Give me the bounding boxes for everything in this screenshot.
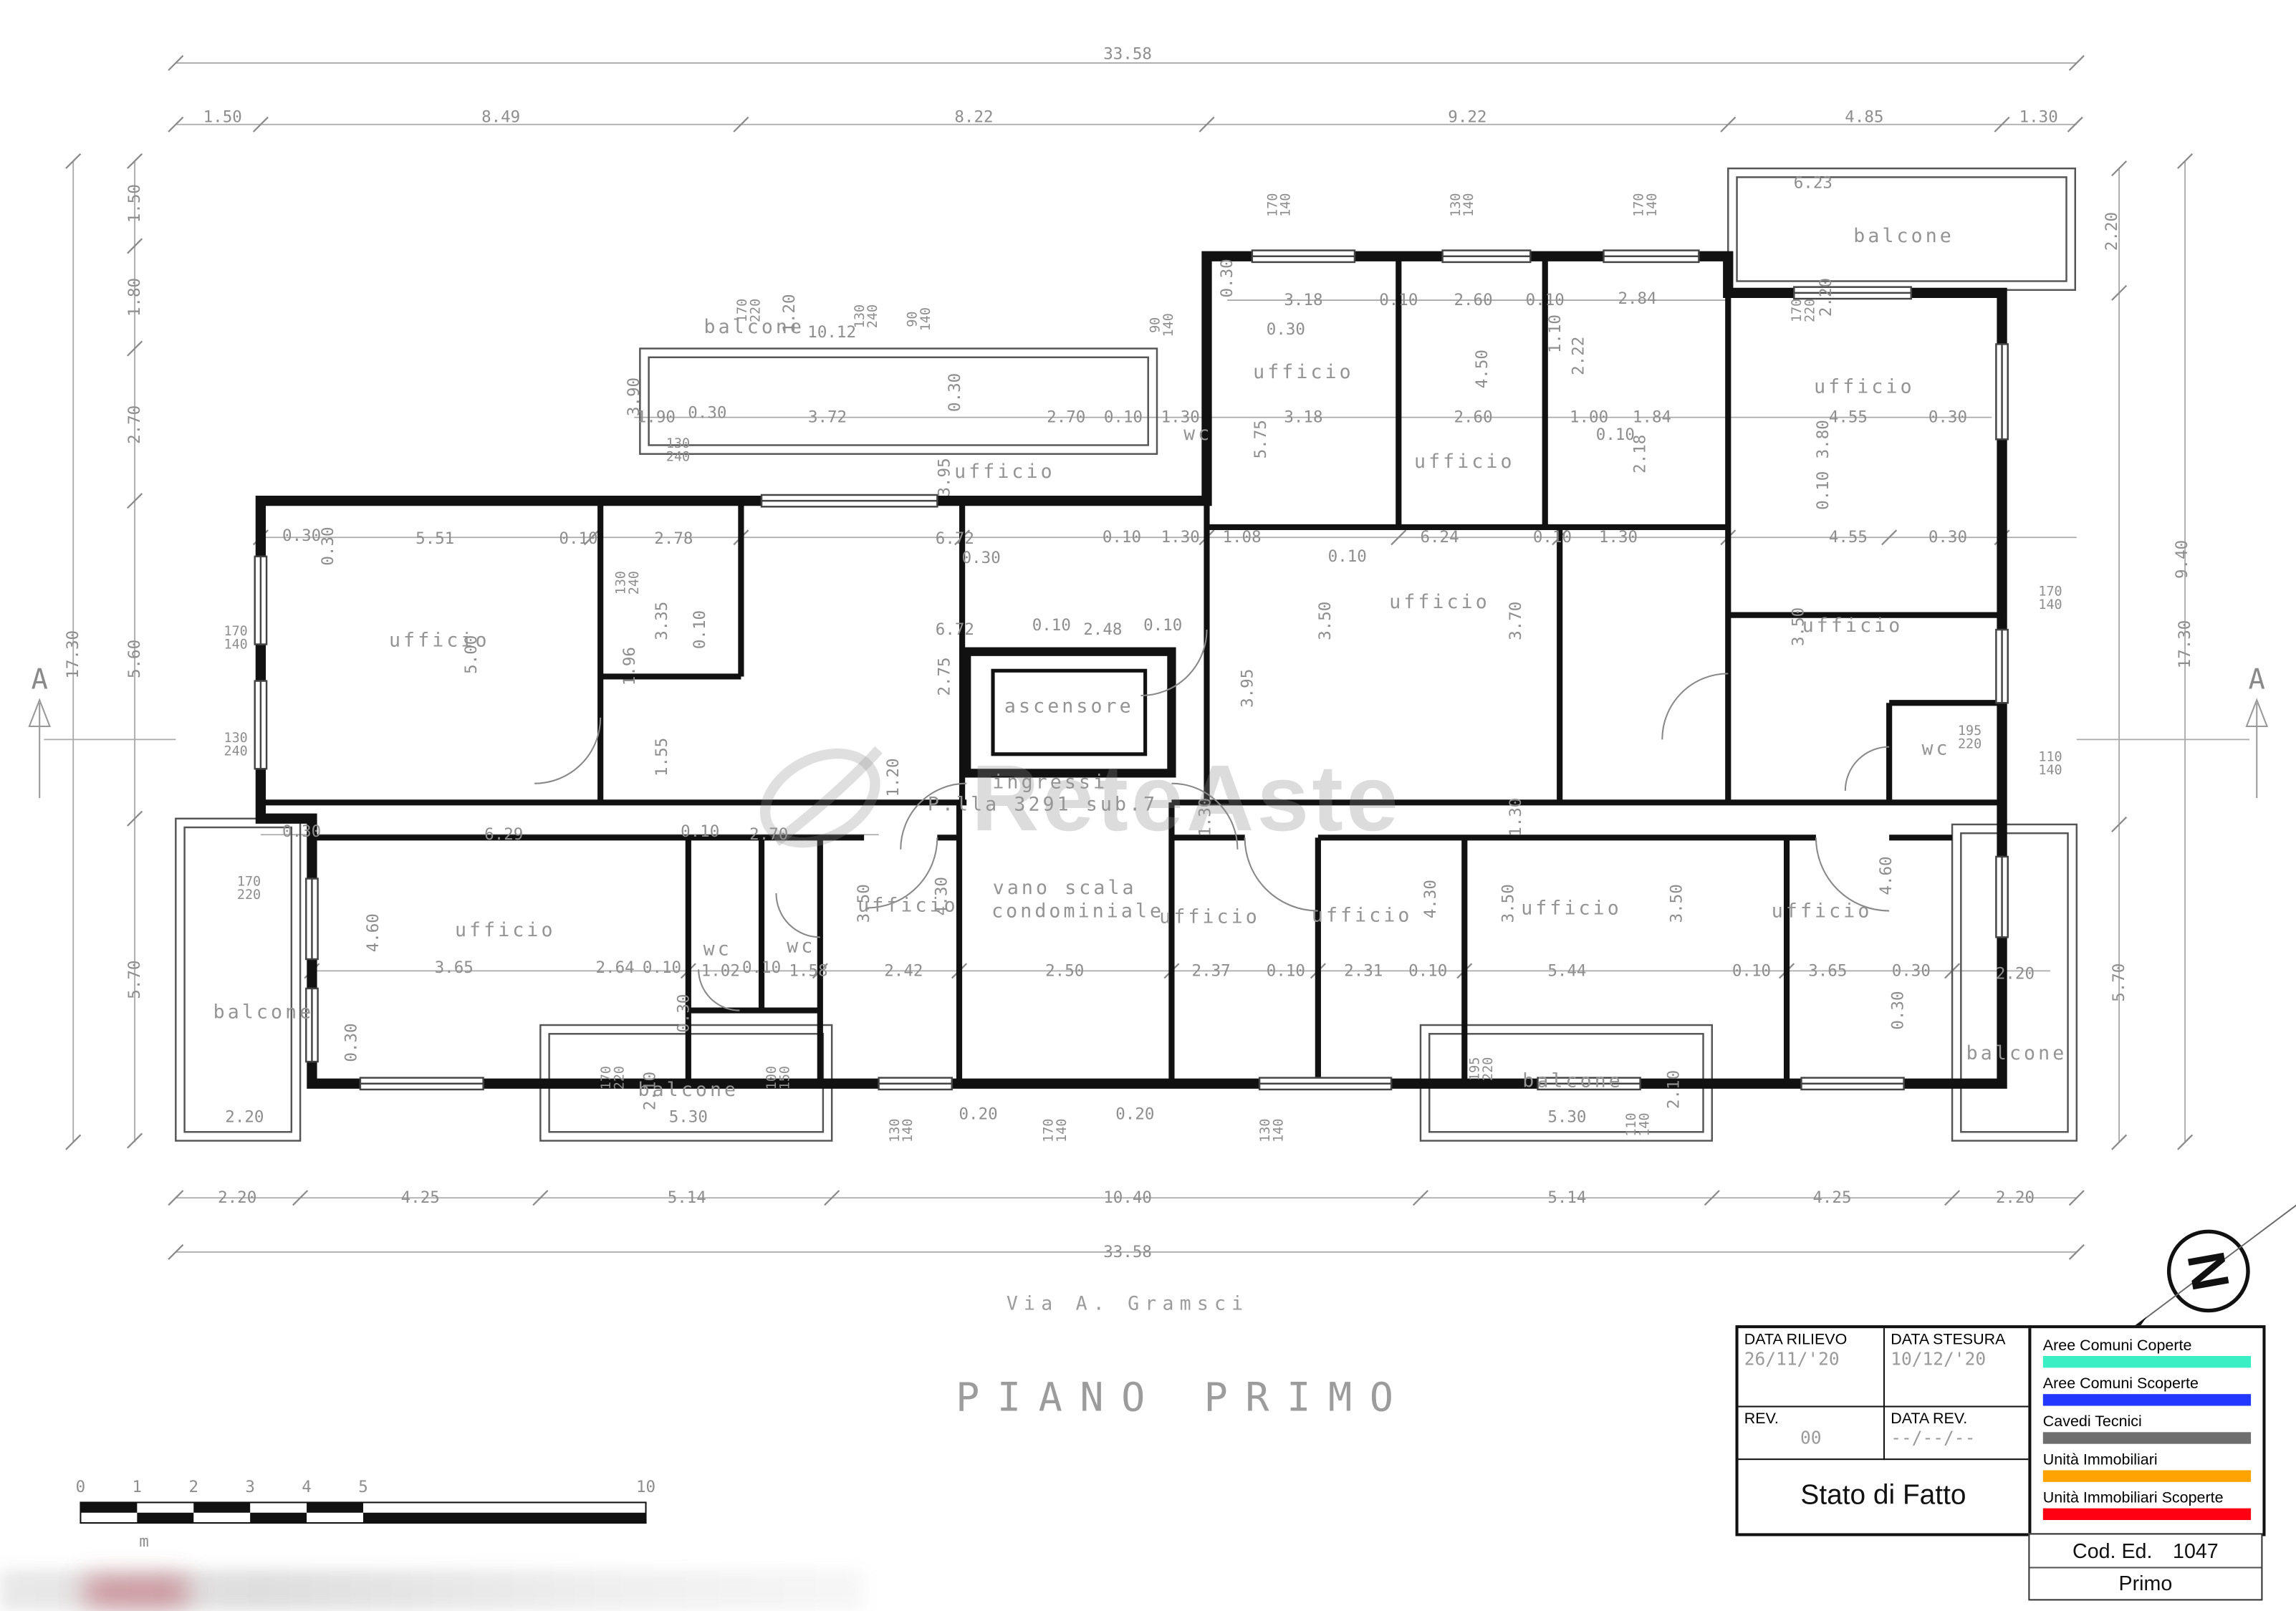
dim-label: 0.30 (1928, 409, 1967, 425)
dim-label: 130 240 (224, 734, 248, 761)
dim-label: 3.18 (1284, 409, 1322, 425)
dim-label: 4.30 (1423, 880, 1439, 918)
room-label: ufficio (1521, 900, 1622, 919)
dim-label: 6.24 (1420, 529, 1459, 546)
dim-label: 0.10 (1143, 617, 1182, 633)
dim-label: 4.85 (1845, 109, 1883, 125)
dim-label: 1.50 (127, 184, 143, 223)
dim-label: 5.30 (1547, 1109, 1586, 1125)
dim-label: 2.10 (1666, 1070, 1682, 1109)
legend-color-bar (2043, 1432, 2251, 1443)
dim-label: 4.55 (1829, 529, 1868, 546)
dim-label: 0.10 (1328, 548, 1367, 564)
dim-label: 0.10 (1267, 963, 1305, 979)
dim-label: 90 140 (908, 307, 935, 331)
room-label: wc (703, 941, 732, 960)
legend-item: Cavedi Tecnici (2043, 1413, 2251, 1444)
dim-label: 0.10 (1104, 409, 1143, 425)
dim-label: 2.78 (654, 531, 693, 547)
room-label: ingressi (992, 774, 1108, 793)
dim-label: 1.30 (1507, 798, 1524, 837)
scalebar-tick: 4 (302, 1478, 312, 1497)
dim-label: 0.10 (1408, 963, 1447, 979)
scale-bar (80, 1502, 645, 1523)
dim-label: 4.25 (1812, 1190, 1851, 1206)
dim-label: 5.60 (127, 640, 143, 678)
dim-label: 3.50 (1500, 884, 1517, 923)
dim-label: 0.30 (962, 549, 1001, 566)
dim-label: 2.20 (225, 1109, 264, 1125)
dim-label: 130 240 (666, 439, 690, 466)
dim-label: 8.49 (481, 109, 520, 125)
dim-label: 0.30 (282, 824, 321, 840)
title-block: DATA RILIEVO 26/11/'20 DATA STESURA 10/1… (1735, 1325, 2265, 1536)
legend-item: Aree Comuni Scoperte (2043, 1375, 2251, 1405)
room-label: ufficio (1312, 907, 1413, 926)
street-label: Via A. Gramsci (1007, 1294, 1249, 1316)
dim-label: 130 240 (855, 304, 883, 328)
dim-label: 3.95 (1239, 669, 1256, 708)
dim-label: 0.10 (1526, 292, 1565, 309)
dim-label: 170 140 (1634, 193, 1661, 217)
dim-label: 170 220 (237, 877, 261, 904)
room-label: balcone (1853, 228, 1954, 247)
dim-label: 0.10 (1103, 529, 1141, 546)
legend-item-label: Aree Comuni Scoperte (2043, 1375, 2251, 1393)
dim-label: 0.30 (946, 373, 963, 412)
dim-label: 170 140 (1044, 1119, 1071, 1143)
dim-label: 0.30 (1928, 529, 1967, 546)
section-letter: A (2249, 667, 2265, 696)
dim-label: 2.75 (936, 657, 953, 696)
legend-item-label: Cavedi Tecnici (2043, 1413, 2251, 1431)
scalebar-tick: 0 (76, 1478, 86, 1497)
dim-label: 0.30 (1219, 259, 1236, 297)
dim-label: 17.30 (2177, 620, 2194, 669)
dim-label: 2.48 (1083, 622, 1122, 638)
data-stesura-value: 10/12/'20 (1891, 1349, 2022, 1370)
dim-label: 5.30 (669, 1109, 708, 1125)
legend-color-bar (2043, 1394, 2251, 1405)
dim-label: 0.10 (1815, 471, 1832, 510)
dim-label: 5.75 (1253, 420, 1269, 458)
dim-label: 3.70 (1507, 602, 1524, 640)
dim-label: 3.80 (1815, 420, 1832, 458)
dim-label: 2.22 (1570, 337, 1587, 375)
dim-label: 2.10 (642, 1072, 658, 1110)
dim-label: 0.10 (1732, 963, 1771, 979)
dim-label: 3.50 (1668, 884, 1685, 923)
scalebar-tick: 2 (188, 1478, 198, 1497)
dim-label: 6.23 (1794, 175, 1833, 191)
dim-label: 100 150 (767, 1066, 794, 1090)
data-rilievo-value: 26/11/'20 (1744, 1349, 1878, 1370)
legend: Aree Comuni CoperteAree Comuni ScoperteC… (2031, 1328, 2262, 1533)
dim-label: 17.30 (65, 630, 82, 679)
dim-label: 6.72 (936, 622, 974, 638)
dim-label: 2.20 (218, 1190, 256, 1206)
dim-label: 1.10 (1547, 314, 1564, 353)
room-label: ufficio (954, 463, 1055, 483)
room-label: condominiale (991, 903, 1164, 922)
dim-label: 5.00 (463, 635, 480, 674)
dim-label: 2.60 (1454, 292, 1492, 309)
room-label: vano scala (993, 879, 1137, 898)
dim-label: 2.20 (1818, 278, 1835, 317)
data-stesura-label: DATA STESURA (1891, 1331, 2022, 1349)
dim-label: 2.60 (1454, 409, 1492, 425)
dim-label: 0.30 (343, 1023, 360, 1062)
rev-label: REV. (1744, 1410, 1878, 1428)
room-label: ufficio (1814, 378, 1915, 398)
dim-label: 2.70 (1047, 409, 1085, 425)
dim-label: 4.60 (365, 913, 382, 952)
dim-label: 1.58 (789, 963, 827, 979)
data-rev-label: DATA REV. (1891, 1410, 2022, 1428)
dim-label: 1.02 (701, 963, 740, 979)
dim-label: 9.40 (2174, 540, 2191, 579)
cod-ed-value: 1047 (2173, 1539, 2219, 1562)
cod-ed-label: Cod. Ed. (2072, 1539, 2152, 1562)
rev-value: 00 (1744, 1428, 1878, 1448)
dim-label: 1.30 (1161, 529, 1200, 546)
bottom-blur-blob (85, 1579, 188, 1605)
dim-label: 3.18 (1284, 292, 1322, 309)
dim-label: 0.10 (742, 960, 781, 976)
dim-label: 130 140 (1451, 193, 1479, 217)
room-label: ufficio (1389, 594, 1490, 613)
dim-label: 1.50 (203, 109, 242, 125)
data-rilievo-label: DATA RILIEVO (1744, 1331, 1878, 1349)
dim-label: 2.18 (1632, 435, 1648, 473)
legend-item-label: Unità Immobiliari Scoperte (2043, 1490, 2251, 1508)
dim-label: 2.20 (1996, 966, 2035, 982)
dim-label: 1.20 (781, 294, 797, 332)
dim-label: 2.70 (127, 405, 143, 444)
dim-label: 1.90 (637, 409, 676, 425)
dim-label: 0.30 (320, 526, 336, 565)
data-rev-value: --/--/-- (1891, 1428, 2022, 1448)
dim-label: 130 140 (1261, 1119, 1288, 1143)
room-label: ufficio (1414, 453, 1515, 472)
dim-label: 2.31 (1344, 963, 1383, 979)
dim-label: 1.00 (1570, 409, 1608, 425)
dim-label: 2.20 (1996, 1190, 2035, 1206)
room-label: wc (1183, 425, 1212, 445)
scalebar-tick: 3 (245, 1478, 255, 1497)
dim-label: 0.20 (959, 1106, 998, 1122)
dim-label: 195 220 (1958, 726, 1982, 754)
dim-label: 3.65 (1808, 963, 1847, 979)
dim-label: 90 140 (1151, 313, 1178, 337)
dim-label: 0.30 (1890, 991, 1906, 1029)
room-label: balcone (1522, 1072, 1623, 1092)
dim-label: 3.35 (654, 602, 671, 640)
dim-label: 6.29 (484, 827, 523, 843)
room-label: wc (787, 938, 815, 957)
room-label: balcone (1966, 1044, 2067, 1064)
section-letter: A (31, 667, 47, 696)
legend-color-bar (2043, 1471, 2251, 1482)
dim-label: 2.84 (1618, 291, 1656, 307)
legend-item: Aree Comuni Coperte (2043, 1337, 2251, 1367)
dim-label: 0.10 (1596, 427, 1635, 443)
page-title: PIANO PRIMO (956, 1376, 1411, 1421)
dim-label: 3.95 (936, 458, 953, 496)
scalebar-unit: m (139, 1531, 149, 1551)
dim-label: 33.58 (1103, 46, 1152, 62)
dim-label: 0.30 (282, 528, 321, 544)
dim-label: 1.80 (127, 278, 143, 317)
scalebar-tick: 1 (133, 1478, 143, 1497)
dim-label: 5.51 (416, 531, 454, 547)
dim-label: 0.10 (1533, 529, 1572, 546)
dim-label: 170 220 (1792, 299, 1820, 322)
dim-label: 9.22 (1448, 109, 1486, 125)
dim-label: 130 240 (616, 571, 643, 595)
dim-label: 170 220 (738, 299, 765, 322)
dim-label: 3.72 (808, 409, 847, 425)
legend-item: Unità Immobiliari (2043, 1451, 2251, 1482)
dim-label: 1.30 (1599, 529, 1638, 546)
dim-label: 4.30 (933, 877, 950, 915)
dim-label: 170 220 (602, 1066, 629, 1090)
dim-label: 4.60 (1878, 856, 1895, 895)
dim-label: 4.50 (1474, 350, 1490, 388)
code-box: Cod. Ed. 1047 Primo (2028, 1533, 2262, 1600)
legend-color-bar (2043, 1509, 2251, 1520)
dim-label: 110 140 (1627, 1112, 1654, 1136)
dim-label: 6.72 (936, 531, 974, 547)
dim-label: 0.20 (1115, 1106, 1154, 1122)
scalebar-tick: 5 (358, 1478, 368, 1497)
dim-label: 0.10 (692, 610, 709, 649)
scalebar-tick: 10 (636, 1478, 655, 1497)
dim-label: 110 140 (2038, 752, 2062, 779)
dim-label: 5.14 (668, 1190, 706, 1206)
dim-label: 0.10 (681, 824, 719, 840)
north-letter: N (2176, 1247, 2241, 1295)
dim-label: 4.25 (401, 1190, 440, 1206)
legend-color-bar (2043, 1355, 2251, 1367)
dim-label: 170 140 (2038, 587, 2062, 614)
dim-label: 5.70 (2111, 963, 2128, 1002)
room-label: ufficio (1159, 908, 1260, 928)
dim-label: 1.30 (1161, 409, 1200, 425)
dim-label: 0.10 (643, 960, 681, 976)
room-label: P.lla 3291 sub.7 (928, 796, 1158, 815)
drawing-sheet: N ReteAste 33.581.508.498.229.224.851.30… (0, 0, 2296, 1611)
dim-label: 5.70 (127, 961, 143, 999)
status-title: Stato di Fatto (1739, 1460, 2029, 1533)
dim-label: 2.37 (1192, 963, 1231, 979)
dim-label: 1.30 (1197, 798, 1214, 837)
legend-item: Unità Immobiliari Scoperte (2043, 1490, 2251, 1521)
dim-label: 1.20 (885, 758, 902, 797)
dim-label: 0.30 (1267, 322, 1305, 338)
room-label: ufficio (1253, 364, 1354, 383)
room-label: ascensore (1004, 698, 1134, 717)
legend-item-label: Unità Immobiliari (2043, 1451, 2251, 1469)
room-label: balcone (213, 1004, 314, 1023)
dim-label: 2.64 (596, 960, 635, 976)
dim-label: 5.44 (1547, 963, 1586, 979)
dim-label: 4.55 (1829, 409, 1868, 425)
dim-label: 3.50 (1790, 607, 1807, 646)
floor-name: Primo (2119, 1572, 2173, 1595)
dim-label: 10.12 (807, 324, 856, 341)
dim-label: 195 220 (1470, 1057, 1497, 1081)
dim-label: 0.30 (1892, 963, 1931, 979)
dim-label: 1.55 (654, 738, 671, 776)
dim-label: 2.50 (1045, 963, 1084, 979)
dim-label: 170 140 (1268, 193, 1295, 217)
dim-label: 1.84 (1633, 409, 1671, 425)
room-label: wc (1921, 740, 1950, 759)
dim-label: 5.14 (1547, 1190, 1586, 1206)
dim-label: 170 140 (224, 627, 248, 654)
dim-label: 1.96 (622, 647, 638, 686)
dim-label: 8.22 (954, 109, 993, 125)
dim-label: 10.40 (1103, 1190, 1152, 1206)
dim-label: 3.50 (1317, 602, 1334, 640)
legend-item-label: Aree Comuni Coperte (2043, 1337, 2251, 1355)
dim-label: 0.10 (1379, 292, 1418, 309)
dim-label: 2.42 (884, 963, 923, 979)
dim-label: 2.70 (749, 827, 788, 843)
dim-label: 2.20 (2103, 212, 2120, 251)
room-label: ufficio (1772, 903, 1873, 922)
dim-label: 1.08 (1222, 529, 1261, 546)
dim-label: 33.58 (1103, 1244, 1152, 1260)
dim-label: 130 140 (890, 1119, 918, 1143)
dim-label: 0.10 (559, 531, 597, 547)
dim-label: 1.30 (2019, 109, 2058, 125)
dim-label: 0.30 (688, 405, 726, 421)
dim-label: 3.50 (856, 884, 873, 923)
room-label: ufficio (1802, 617, 1903, 636)
dim-label: 0.10 (1032, 617, 1071, 633)
dim-label: 3.65 (435, 960, 474, 976)
room-label: ufficio (455, 922, 556, 941)
dim-label: 0.30 (676, 994, 692, 1033)
